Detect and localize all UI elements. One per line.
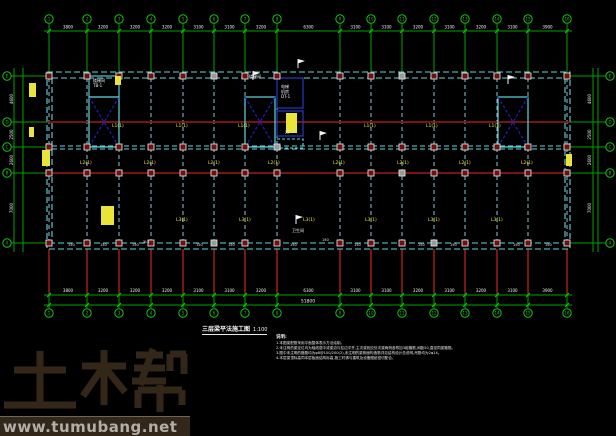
svg-text:3200: 3200 bbox=[162, 288, 173, 293]
svg-text:2: 2 bbox=[86, 17, 89, 22]
svg-text:L3(1): L3(1) bbox=[428, 217, 440, 223]
svg-text:L1(1): L1(1) bbox=[238, 123, 250, 129]
svg-text:150: 150 bbox=[418, 243, 425, 247]
svg-text:3100: 3100 bbox=[444, 288, 455, 293]
svg-text:3800: 3800 bbox=[63, 25, 74, 30]
svg-text:150: 150 bbox=[354, 243, 361, 247]
svg-text:1: 1 bbox=[48, 17, 51, 22]
svg-text:7: 7 bbox=[244, 311, 247, 316]
note-line: 4.本层梁顶标高同本层板面结构标高,施工时请与建筑及设备图纸密切配合。 bbox=[276, 356, 436, 361]
dimensions: 3800380032003200320032003200320031003100… bbox=[9, 25, 598, 308]
svg-text:150: 150 bbox=[196, 243, 203, 247]
svg-text:3100: 3100 bbox=[350, 25, 361, 30]
svg-text:D: D bbox=[608, 120, 611, 125]
svg-text:D: D bbox=[5, 120, 8, 125]
svg-text:L2(1): L2(1) bbox=[333, 160, 345, 166]
svg-text:L2(1): L2(1) bbox=[208, 160, 220, 166]
svg-text:L2(1): L2(1) bbox=[144, 160, 156, 166]
svg-text:4600: 4600 bbox=[587, 93, 592, 104]
svg-text:3: 3 bbox=[118, 311, 121, 316]
svg-text:3200: 3200 bbox=[476, 25, 487, 30]
cad-sheet: 1122334455667788991010111112121313141415… bbox=[0, 0, 616, 436]
svg-text:150: 150 bbox=[68, 243, 75, 247]
svg-text:6: 6 bbox=[213, 311, 216, 316]
drawing-scale: 1:100 bbox=[253, 327, 267, 333]
svg-text:L2(1): L2(1) bbox=[397, 160, 409, 166]
stair-shafts bbox=[89, 76, 528, 148]
svg-text:3100: 3100 bbox=[444, 25, 455, 30]
svg-text:13: 13 bbox=[462, 311, 468, 316]
svg-text:4: 4 bbox=[150, 311, 153, 316]
svg-text:3200: 3200 bbox=[256, 25, 267, 30]
svg-text:B: B bbox=[6, 171, 9, 176]
svg-text:11: 11 bbox=[399, 17, 405, 22]
svg-text:XL1: XL1 bbox=[143, 240, 150, 244]
svg-text:4600: 4600 bbox=[9, 93, 14, 104]
svg-text:A: A bbox=[6, 241, 9, 246]
svg-text:3100: 3100 bbox=[350, 288, 361, 293]
svg-text:C: C bbox=[6, 145, 9, 150]
svg-text:14: 14 bbox=[494, 17, 500, 22]
svg-text:L1(1): L1(1) bbox=[112, 123, 124, 129]
svg-text:3100: 3100 bbox=[507, 288, 518, 293]
svg-text:6300: 6300 bbox=[303, 25, 314, 30]
svg-text:15: 15 bbox=[525, 17, 531, 22]
svg-text:3200: 3200 bbox=[162, 25, 173, 30]
svg-text:7000: 7000 bbox=[9, 202, 14, 213]
svg-text:L2(1): L2(1) bbox=[268, 160, 280, 166]
svg-text:6300: 6300 bbox=[303, 288, 314, 293]
watermark-logo-icon bbox=[0, 345, 195, 417]
svg-text:3100: 3100 bbox=[224, 25, 235, 30]
svg-text:150: 150 bbox=[100, 243, 107, 247]
svg-text:7000: 7000 bbox=[587, 202, 592, 213]
svg-text:卫生间: 卫生间 bbox=[292, 227, 304, 233]
svg-text:L2(1): L2(1) bbox=[459, 160, 471, 166]
svg-text:5: 5 bbox=[182, 311, 185, 316]
svg-text:3100: 3100 bbox=[224, 288, 235, 293]
drawing-title: 三层梁平法施工图1:100 bbox=[202, 324, 267, 335]
svg-text:1: 1 bbox=[48, 311, 51, 316]
svg-text:16: 16 bbox=[564, 17, 570, 22]
svg-text:2: 2 bbox=[86, 311, 89, 316]
watermark-url: www.tumubang.net bbox=[0, 416, 190, 436]
svg-text:3200: 3200 bbox=[256, 288, 267, 293]
svg-text:5: 5 bbox=[182, 17, 185, 22]
svg-text:15: 15 bbox=[525, 311, 531, 316]
svg-text:TB-1: TB-1 bbox=[92, 83, 103, 88]
svg-text:L3(1): L3(1) bbox=[176, 217, 188, 223]
svg-text:3200: 3200 bbox=[413, 288, 424, 293]
svg-text:L3(1): L3(1) bbox=[239, 217, 251, 223]
notes-block: 说明: 1.本图梁配筋采用平面整体表示方法绘制。 2.未注明的梁定位均为轴线居中… bbox=[276, 334, 436, 361]
svg-text:2500: 2500 bbox=[9, 129, 14, 140]
svg-text:A: A bbox=[609, 241, 612, 246]
svg-text:150: 150 bbox=[450, 243, 457, 247]
svg-text:6: 6 bbox=[213, 17, 216, 22]
svg-text:3100: 3100 bbox=[507, 25, 518, 30]
svg-text:3100: 3100 bbox=[193, 25, 204, 30]
svg-text:DT-1: DT-1 bbox=[281, 94, 291, 99]
svg-text:3200: 3200 bbox=[98, 288, 109, 293]
svg-text:L3(1): L3(1) bbox=[303, 217, 315, 223]
svg-text:L1(1): L1(1) bbox=[176, 123, 188, 129]
svg-text:51800: 51800 bbox=[301, 299, 315, 305]
svg-text:13: 13 bbox=[462, 17, 468, 22]
svg-text:10: 10 bbox=[368, 311, 374, 316]
svg-text:11: 11 bbox=[399, 311, 405, 316]
svg-text:L3(1): L3(1) bbox=[491, 217, 503, 223]
svg-text:L1(1): L1(1) bbox=[426, 123, 438, 129]
notes-header: 说明: bbox=[276, 334, 436, 340]
svg-text:3200: 3200 bbox=[476, 288, 487, 293]
svg-text:150: 150 bbox=[513, 243, 520, 247]
svg-text:9: 9 bbox=[339, 311, 342, 316]
svg-text:3800: 3800 bbox=[63, 288, 74, 293]
svg-text:L1(1): L1(1) bbox=[364, 123, 376, 129]
svg-text:2600: 2600 bbox=[9, 154, 14, 165]
svg-text:7: 7 bbox=[244, 17, 247, 22]
svg-text:L3(1): L3(1) bbox=[365, 217, 377, 223]
svg-text:B: B bbox=[609, 171, 612, 176]
svg-text:XT: XT bbox=[285, 130, 291, 135]
svg-text:3200: 3200 bbox=[130, 288, 141, 293]
svg-text:3200: 3200 bbox=[98, 25, 109, 30]
svg-text:3900: 3900 bbox=[542, 25, 553, 30]
drawing-title-text: 三层梁平法施工图 bbox=[202, 326, 250, 333]
svg-text:14: 14 bbox=[494, 311, 500, 316]
svg-text:2600: 2600 bbox=[587, 154, 592, 165]
svg-text:8: 8 bbox=[276, 311, 279, 316]
svg-text:150: 150 bbox=[545, 243, 552, 247]
svg-text:10: 10 bbox=[368, 17, 374, 22]
svg-text:3100: 3100 bbox=[381, 25, 392, 30]
svg-text:3100: 3100 bbox=[381, 288, 392, 293]
svg-text:L2(1): L2(1) bbox=[521, 160, 533, 166]
beam-tags: L1(1)L1(1)L1(1)L1(1)L1(1)L1(1)L2(1)L2(1)… bbox=[29, 76, 572, 225]
svg-text:150: 150 bbox=[290, 243, 297, 247]
svg-text:16: 16 bbox=[564, 311, 570, 316]
svg-text:150: 150 bbox=[322, 238, 329, 242]
svg-text:3: 3 bbox=[118, 17, 121, 22]
svg-text:3100: 3100 bbox=[193, 288, 204, 293]
svg-text:2500: 2500 bbox=[587, 129, 592, 140]
svg-text:12: 12 bbox=[431, 17, 437, 22]
svg-text:3200: 3200 bbox=[130, 25, 141, 30]
axis-grid: 1122334455667788991010111112121313141415… bbox=[3, 15, 614, 317]
svg-text:C: C bbox=[609, 145, 612, 150]
svg-text:8: 8 bbox=[276, 17, 279, 22]
svg-text:12: 12 bbox=[431, 311, 437, 316]
svg-text:L2(1): L2(1) bbox=[80, 160, 92, 166]
svg-text:3900: 3900 bbox=[542, 288, 553, 293]
svg-text:L1(1): L1(1) bbox=[489, 123, 501, 129]
svg-text:4: 4 bbox=[150, 17, 153, 22]
svg-text:3200: 3200 bbox=[413, 25, 424, 30]
svg-text:150: 150 bbox=[228, 243, 235, 247]
svg-text:150: 150 bbox=[132, 243, 139, 247]
svg-text:9: 9 bbox=[339, 17, 342, 22]
